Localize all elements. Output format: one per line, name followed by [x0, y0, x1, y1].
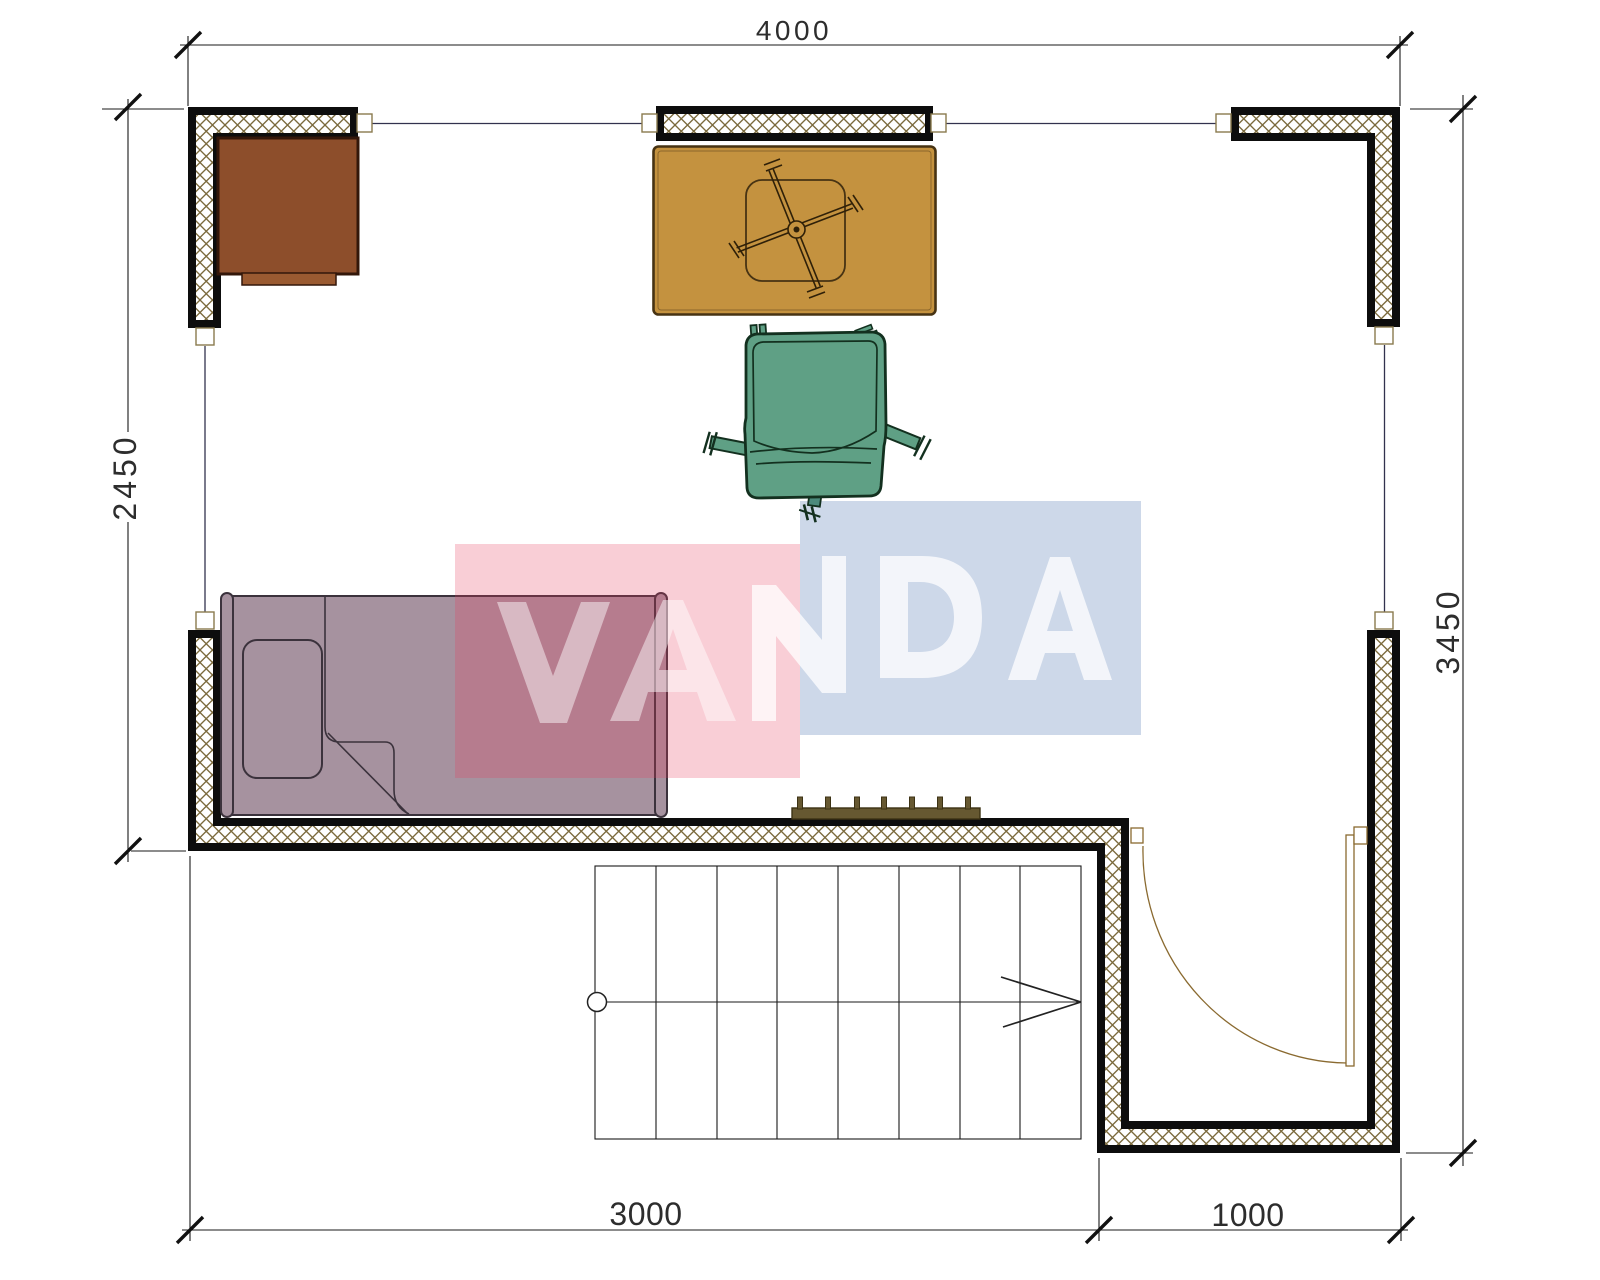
svg-text:3450: 3450 [1430, 587, 1466, 674]
svg-text:2450: 2450 [107, 433, 143, 520]
svg-text:3000: 3000 [609, 1196, 682, 1232]
svg-text:4000: 4000 [756, 15, 832, 46]
svg-text:1000: 1000 [1211, 1197, 1284, 1233]
